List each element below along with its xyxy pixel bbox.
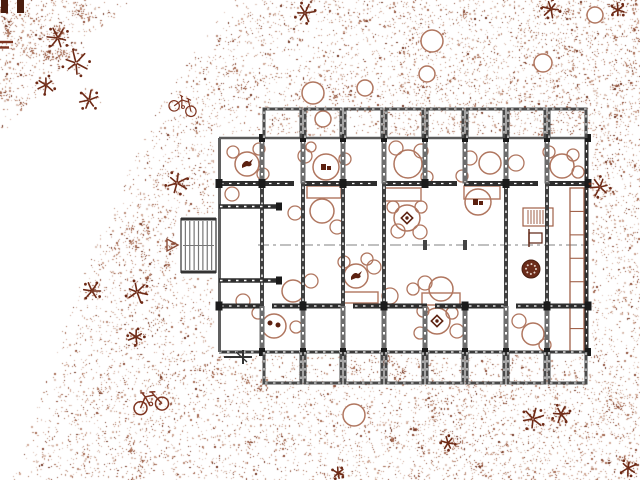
bay-hatch: [264, 109, 301, 138]
planter-speck: [534, 265, 536, 267]
planter-disc: [522, 260, 540, 278]
block-glyph: [473, 199, 478, 205]
plant-dot: [96, 282, 98, 284]
porch-bay-bottom: [345, 352, 382, 383]
bay-hatch: [508, 352, 545, 383]
column-tick: [463, 240, 467, 250]
plant-dot: [306, 22, 308, 24]
bay-hatch: [508, 109, 545, 138]
glyph-dot: [406, 217, 408, 219]
plant-dot: [66, 44, 68, 46]
plant-dot: [84, 283, 86, 285]
column-junction: [585, 302, 592, 311]
plant-dot: [171, 172, 173, 174]
plant-icon: [84, 282, 101, 299]
planter-speck: [535, 268, 537, 270]
planter-speck: [527, 264, 529, 266]
plant-dot: [49, 45, 51, 47]
plant-dot: [622, 3, 624, 5]
plant-dot: [440, 442, 442, 444]
tree-icon: [343, 404, 365, 426]
column-junction: [381, 302, 388, 311]
porch-bay-top: [427, 109, 463, 138]
porch-bay-bottom: [508, 352, 545, 383]
plant-dot: [523, 411, 525, 413]
plant-icon: [611, 3, 624, 16]
glyph-dot: [268, 321, 272, 325]
porch-bay-bottom: [305, 352, 341, 383]
bicycle-icon: [131, 388, 170, 416]
plant-dot: [134, 344, 136, 346]
plant-dot: [547, 17, 549, 19]
plant-icon: [294, 2, 316, 24]
plan-vector-drawing: [0, 0, 640, 480]
porch-bay-top: [508, 109, 545, 138]
bay-hatch: [549, 109, 586, 138]
plant-dot: [609, 187, 611, 189]
plant-dot: [82, 107, 84, 109]
plant-dot: [448, 435, 450, 437]
plant-dot: [125, 295, 127, 297]
plant-icon: [552, 404, 571, 423]
planter-speck: [531, 263, 533, 265]
edge-building-bar: [17, 0, 24, 13]
plant-dot: [66, 30, 68, 32]
plant-dot: [342, 476, 344, 478]
site-plan: [0, 0, 640, 480]
plant-dot: [569, 410, 571, 412]
plant-dot: [332, 469, 334, 471]
plant-dot: [556, 404, 558, 406]
porch-bay-top: [467, 109, 504, 138]
plant-dot: [454, 443, 456, 445]
plant-dot: [559, 10, 561, 12]
plant-dot: [301, 2, 303, 4]
plant-icon: [80, 90, 98, 109]
plant-dot: [133, 280, 135, 282]
porch-bay-top: [386, 109, 423, 138]
plant-dot: [165, 184, 167, 186]
plant-dot: [72, 49, 74, 51]
tree-icon: [534, 54, 552, 72]
plant-dot: [294, 16, 296, 18]
column-junction: [276, 203, 282, 211]
plant-dot: [542, 423, 544, 425]
bay-hatch: [549, 352, 586, 383]
plant-icon: [127, 328, 146, 347]
plant-icon: [620, 460, 636, 477]
plant-dot: [630, 475, 632, 477]
glyph-dot: [276, 323, 280, 327]
bay-hatch: [386, 352, 423, 383]
porch-bay-top: [264, 109, 301, 138]
plant-icon: [589, 176, 611, 199]
plant-dot: [334, 478, 336, 480]
plant-dot: [94, 107, 96, 109]
plant-dot: [552, 417, 554, 419]
plant-dot: [611, 5, 613, 7]
column-junction: [503, 179, 510, 188]
plant-dot: [146, 285, 148, 287]
block-glyph: [321, 164, 326, 170]
porch-bay-bottom: [549, 352, 586, 383]
plant-dot: [597, 196, 599, 198]
column-junction: [259, 179, 266, 188]
plant-dot: [96, 92, 98, 94]
plant-dot: [314, 9, 316, 11]
bay-hatch: [467, 109, 504, 138]
plant-icon: [36, 75, 56, 95]
plant-dot: [50, 28, 52, 30]
porch-bay-bottom: [386, 352, 423, 383]
column-junction: [300, 302, 307, 311]
plant-icon: [523, 408, 544, 429]
plant-icon: [541, 0, 562, 19]
tree-icon: [357, 80, 373, 96]
tree-icon: [302, 82, 324, 104]
porch-bay-bottom: [427, 352, 463, 383]
bay-hatch: [386, 109, 423, 138]
bay-hatch: [305, 352, 341, 383]
plant-dot: [36, 82, 38, 84]
block-glyph: [479, 201, 483, 205]
planter-speck: [534, 272, 536, 274]
plant-icon: [332, 467, 344, 480]
plant-dot: [540, 410, 542, 412]
planter-speck: [527, 272, 529, 274]
stair-direction-arrow: [167, 239, 178, 251]
plant-dot: [341, 467, 343, 469]
bay-hatch: [427, 352, 463, 383]
porch-bay-bottom: [264, 352, 301, 383]
plant-dot: [611, 14, 613, 16]
column-junction: [216, 179, 223, 188]
plant-dot: [99, 296, 101, 298]
porch-bay-top: [345, 109, 382, 138]
plant-dot: [541, 7, 543, 9]
plant-dot: [622, 14, 624, 16]
bay-hatch: [427, 109, 463, 138]
plant-dot: [565, 421, 567, 423]
plant-dot: [187, 178, 189, 180]
porch-bay-top: [549, 109, 586, 138]
column-junction: [216, 302, 223, 311]
glyph-dot: [436, 320, 438, 322]
plant-dot: [80, 92, 82, 94]
column-junction: [422, 179, 429, 188]
plant-dot: [448, 449, 450, 451]
plant-dot: [623, 460, 625, 462]
plant-dot: [179, 193, 181, 195]
bay-hatch: [264, 352, 301, 383]
tree-icon: [315, 111, 331, 127]
plant-dot: [620, 472, 622, 474]
column-junction: [544, 302, 551, 311]
plant-dot: [599, 176, 601, 178]
column-junction: [462, 302, 469, 311]
plant-dot: [143, 336, 145, 338]
tree-icon: [421, 30, 443, 52]
bicycle-icon: [168, 93, 200, 118]
plant-dot: [127, 335, 129, 337]
plant-dot: [552, 0, 554, 1]
edge-building-bar: [1, 0, 8, 13]
bay-hatch: [345, 352, 382, 383]
plant-icon: [165, 172, 189, 195]
column-junction: [340, 179, 347, 188]
column-tick: [423, 240, 427, 250]
plant-dot: [85, 297, 87, 299]
plant-dot: [635, 463, 637, 465]
planter-speck: [530, 273, 532, 275]
plant-dot: [62, 66, 64, 68]
plant-dot: [526, 428, 528, 430]
bay-hatch: [467, 352, 504, 383]
bay-hatch: [345, 109, 382, 138]
plant-dot: [48, 75, 50, 77]
block-glyph: [327, 166, 331, 170]
building-slab: [217, 137, 589, 353]
plant-dot: [589, 183, 591, 185]
column-junction: [276, 277, 282, 285]
plant-icon: [125, 280, 148, 304]
plant-dot: [89, 61, 91, 63]
planter-speck: [525, 268, 527, 270]
corner-fragments: [0, 0, 24, 48]
plant-dot: [80, 75, 82, 77]
plant-dot: [54, 88, 56, 90]
plant-icon: [62, 49, 91, 77]
plant-icon: [47, 28, 68, 47]
plant-icon: [440, 435, 457, 452]
plant-dot: [44, 93, 46, 95]
plant-dot: [137, 328, 139, 330]
plant-dot: [141, 301, 143, 303]
porch-bay-bottom: [467, 352, 504, 383]
tree-icon: [419, 66, 435, 82]
tree-icon: [587, 7, 603, 23]
